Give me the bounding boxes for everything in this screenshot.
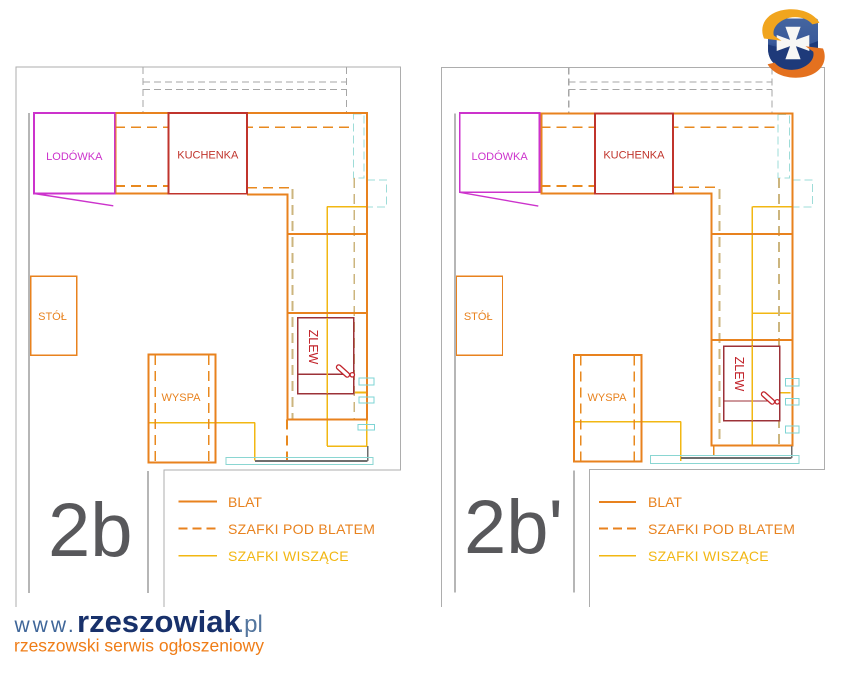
svg-text:SZAFKI POD BLATEM: SZAFKI POD BLATEM <box>648 521 795 537</box>
svg-text:rzeszowski serwis ogłoszeniowy: rzeszowski serwis ogłoszeniowy <box>14 636 264 656</box>
svg-text:2b: 2b <box>48 488 133 573</box>
svg-text:STÓŁ: STÓŁ <box>38 310 67 323</box>
svg-text:www.: www. <box>14 614 77 637</box>
svg-text:WYSPA: WYSPA <box>588 392 628 404</box>
svg-text:SZAFKI WISZĄCE: SZAFKI WISZĄCE <box>228 548 349 564</box>
svg-text:BLAT: BLAT <box>228 494 262 510</box>
svg-text:2b': 2b' <box>464 485 563 570</box>
svg-text:SZAFKI POD BLATEM: SZAFKI POD BLATEM <box>228 521 375 537</box>
svg-text:ZLEW: ZLEW <box>732 357 746 392</box>
svg-text:ZLEW: ZLEW <box>306 330 320 365</box>
svg-text:BLAT: BLAT <box>648 494 682 510</box>
svg-text:STÓŁ: STÓŁ <box>464 310 493 323</box>
svg-text:KUCHENKA: KUCHENKA <box>603 150 665 162</box>
svg-text:LODÓWKA: LODÓWKA <box>46 150 103 163</box>
svg-text:.pl: .pl <box>238 611 263 638</box>
svg-text:SZAFKI WISZĄCE: SZAFKI WISZĄCE <box>648 548 769 564</box>
svg-text:LODÓWKA: LODÓWKA <box>471 150 528 163</box>
svg-text:rzeszowiak: rzeszowiak <box>77 604 241 639</box>
svg-text:KUCHENKA: KUCHENKA <box>177 150 239 162</box>
svg-text:WYSPA: WYSPA <box>162 392 202 404</box>
